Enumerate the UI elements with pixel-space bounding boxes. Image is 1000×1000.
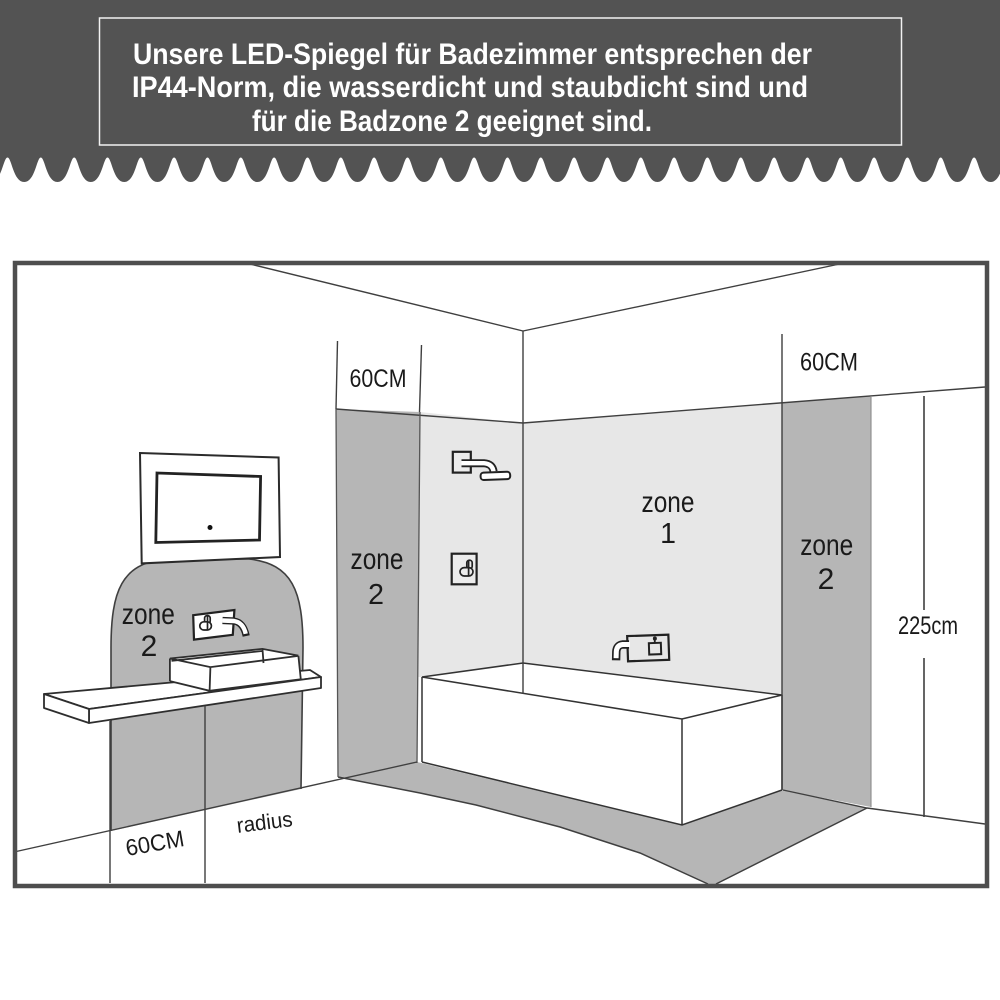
svg-text:zone: zone xyxy=(642,486,695,519)
svg-text:Unsere LED-Spiegel für Badezim: Unsere LED-Spiegel für Badezimmer entspr… xyxy=(133,38,812,71)
svg-text:60CM: 60CM xyxy=(350,365,407,393)
svg-text:60CM: 60CM xyxy=(123,825,186,861)
svg-text:für die Badzone 2 geeignet sin: für die Badzone 2 geeignet sind. xyxy=(252,105,652,138)
svg-text:2: 2 xyxy=(368,579,384,611)
svg-text:1: 1 xyxy=(660,518,676,550)
svg-text:60CM: 60CM xyxy=(800,349,858,377)
svg-text:zone: zone xyxy=(800,529,853,562)
svg-text:2: 2 xyxy=(141,630,158,663)
svg-text:radius: radius xyxy=(235,807,294,838)
svg-text:zone: zone xyxy=(122,598,175,631)
svg-text:IP44-Norm, die wasserdicht und: IP44-Norm, die wasserdicht und staubdich… xyxy=(132,71,808,104)
svg-text:zone: zone xyxy=(351,543,404,576)
svg-text:2: 2 xyxy=(818,563,835,596)
svg-text:225cm: 225cm xyxy=(898,612,958,640)
